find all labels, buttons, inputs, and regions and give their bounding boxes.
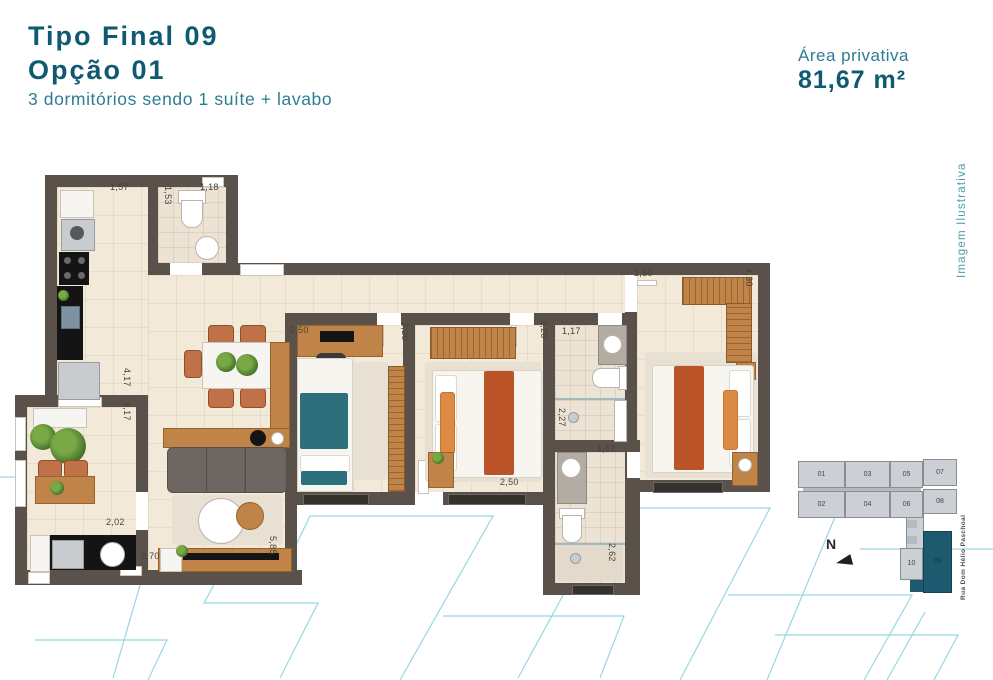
dimension-label: 2,62 bbox=[607, 543, 617, 562]
keyplan-unit-label: 02 bbox=[799, 501, 844, 508]
table-plant bbox=[216, 352, 236, 372]
plant bbox=[58, 290, 69, 301]
stove bbox=[59, 252, 89, 285]
bedroom1-window bbox=[303, 494, 369, 505]
private-area-label: Área privativa bbox=[798, 46, 909, 66]
keyplan-unit-label: 03 bbox=[846, 471, 889, 478]
shower-tray bbox=[614, 400, 627, 442]
burner bbox=[64, 257, 71, 264]
dimension-label: 4,30 bbox=[744, 268, 754, 287]
wall-segment bbox=[222, 263, 770, 275]
keyplan-unit-08: 08 bbox=[923, 489, 957, 514]
shower-head bbox=[568, 412, 579, 423]
burner bbox=[64, 272, 71, 279]
suite-window bbox=[653, 482, 723, 493]
wall-segment bbox=[415, 313, 510, 325]
wall-segment bbox=[543, 325, 555, 492]
wall-segment bbox=[148, 187, 158, 275]
column bbox=[30, 535, 50, 572]
toilet bbox=[181, 200, 203, 228]
keyplan-unit-04: 04 bbox=[845, 491, 890, 518]
decor-vase bbox=[271, 432, 284, 445]
bedroom2-window bbox=[448, 494, 526, 505]
dimension-label: 4,17 bbox=[122, 368, 132, 387]
dimension-label: 1,17 bbox=[597, 444, 616, 454]
lavabo-sink bbox=[195, 236, 219, 260]
wall-segment bbox=[758, 263, 770, 492]
barbecue-grill bbox=[52, 540, 84, 569]
wall-segment bbox=[285, 313, 377, 325]
table-plant bbox=[236, 354, 258, 376]
suite-wardrobe bbox=[726, 303, 752, 363]
keyplan-unit-label: 08 bbox=[924, 498, 956, 505]
shower-head bbox=[570, 553, 581, 564]
wall-segment bbox=[15, 570, 302, 585]
page-title: Tipo Final 09 Opção 01 bbox=[28, 20, 219, 88]
keyplan-unit-label: 06 bbox=[891, 501, 922, 508]
burner bbox=[78, 272, 85, 279]
keyplan-unit-06: 06 bbox=[890, 491, 923, 518]
wall-segment bbox=[555, 313, 598, 325]
plant bbox=[50, 428, 86, 464]
dining-chair bbox=[184, 350, 202, 378]
keyplan-unit-02: 02 bbox=[798, 491, 845, 518]
wall-segment bbox=[226, 175, 238, 275]
sideboard bbox=[270, 342, 290, 432]
lavabo-door bbox=[170, 263, 202, 275]
suite-wardrobe bbox=[682, 277, 752, 305]
bed-runner bbox=[674, 366, 704, 470]
washer-drum bbox=[70, 226, 84, 240]
toilet bbox=[562, 515, 582, 543]
door-leaf bbox=[637, 280, 657, 286]
tv bbox=[183, 553, 279, 560]
keyplan-unit-01: 01 bbox=[798, 461, 845, 488]
watermark-text: Imagem Ilustrativa bbox=[956, 146, 974, 294]
lamp bbox=[738, 458, 752, 472]
keyplan-unit-label: 09 bbox=[924, 558, 951, 565]
keyplan-unit-label: 04 bbox=[846, 501, 889, 508]
dimension-label: 3,20 bbox=[400, 322, 410, 341]
floorplan-page: Tipo Final 09 Opção 01 3 dormitórios sen… bbox=[0, 0, 993, 680]
plant bbox=[176, 545, 188, 557]
title-line2: Opção 01 bbox=[28, 54, 219, 88]
plant bbox=[50, 481, 64, 495]
dimension-label: 1,57 bbox=[110, 182, 129, 192]
dimension-label: 2,50 bbox=[500, 477, 519, 487]
keyplan-unit-label: 10 bbox=[901, 560, 922, 567]
dimension-label: 1,53 bbox=[163, 186, 173, 205]
keyplan-stub bbox=[907, 536, 917, 544]
keyplan-unit-09: 09 bbox=[923, 531, 952, 593]
laundry-tank bbox=[60, 190, 94, 218]
bed-throw bbox=[300, 393, 348, 449]
dining-chair bbox=[240, 388, 266, 408]
monitor bbox=[320, 331, 354, 342]
suite-bath-sink bbox=[561, 458, 581, 478]
keyplan-unit-03: 03 bbox=[845, 461, 890, 488]
keyplan-unit-label: 01 bbox=[799, 471, 844, 478]
bedroom2-door bbox=[510, 313, 534, 325]
balcony-door bbox=[136, 492, 148, 530]
wall-segment bbox=[158, 263, 170, 275]
keyplan-unit-label: 07 bbox=[924, 469, 956, 476]
dimension-label: 1,18 bbox=[200, 182, 219, 192]
keyplan-unit-05: 05 bbox=[890, 461, 923, 488]
suite-bathroom-window bbox=[572, 585, 614, 595]
dimension-label: 3,20 bbox=[539, 320, 549, 339]
dimension-label: 2,50 bbox=[290, 325, 309, 335]
accent-pillow bbox=[301, 471, 347, 485]
dimension-label: 2,70 bbox=[141, 551, 160, 561]
keyplan-unit-07: 07 bbox=[923, 459, 957, 486]
pillow bbox=[300, 455, 350, 472]
wall-segment bbox=[45, 175, 57, 407]
dimension-label: 5,85 bbox=[268, 536, 278, 555]
decor-bowl bbox=[250, 430, 266, 446]
wall-segment bbox=[136, 407, 148, 492]
balcony-table bbox=[35, 476, 95, 504]
side-table bbox=[236, 502, 264, 530]
bed-runner bbox=[484, 371, 514, 475]
balcony-planter bbox=[15, 417, 26, 451]
wardrobe bbox=[430, 327, 516, 359]
wardrobe bbox=[388, 366, 405, 492]
dimension-label: 2,50 bbox=[634, 268, 653, 278]
suite-bathroom-door bbox=[627, 452, 640, 478]
dining-chair bbox=[208, 388, 234, 408]
plant bbox=[432, 452, 444, 464]
bathroom-sink bbox=[603, 335, 622, 354]
dimension-label: 1,17 bbox=[562, 326, 581, 336]
dimension-label: 3,17 bbox=[122, 402, 132, 421]
keyplan-unit-label: 05 bbox=[891, 471, 922, 478]
dimension-label: 2,27 bbox=[557, 408, 567, 427]
keyplan-stub bbox=[907, 520, 917, 528]
suite-door bbox=[625, 278, 637, 312]
kitchen-sink bbox=[61, 306, 80, 329]
title-line1: Tipo Final 09 bbox=[28, 20, 219, 54]
burner bbox=[78, 257, 85, 264]
wall-segment bbox=[202, 263, 226, 275]
street-name: Rua Dom Hélio Paschoal bbox=[960, 496, 973, 600]
sofa bbox=[167, 447, 287, 493]
dimension-label: 2,02 bbox=[106, 517, 125, 527]
north-label: N bbox=[826, 536, 836, 552]
window-sill bbox=[240, 264, 284, 276]
keyplan-unit-10: 10 bbox=[900, 548, 923, 580]
bathroom-door bbox=[598, 313, 622, 325]
hallway-floor bbox=[285, 275, 625, 313]
bedroom1-door bbox=[377, 313, 401, 325]
accent-pillow bbox=[723, 390, 738, 450]
grill-sink bbox=[100, 542, 125, 567]
page-subtitle: 3 dormitórios sendo 1 suíte + lavabo bbox=[28, 89, 332, 110]
balcony-planter bbox=[15, 460, 26, 507]
toilet bbox=[592, 368, 620, 388]
private-area-value: 81,67 m² bbox=[798, 66, 906, 95]
fridge bbox=[58, 362, 100, 400]
accent-pillow bbox=[440, 392, 455, 454]
window-sill bbox=[28, 572, 50, 584]
wall-segment bbox=[543, 492, 555, 595]
